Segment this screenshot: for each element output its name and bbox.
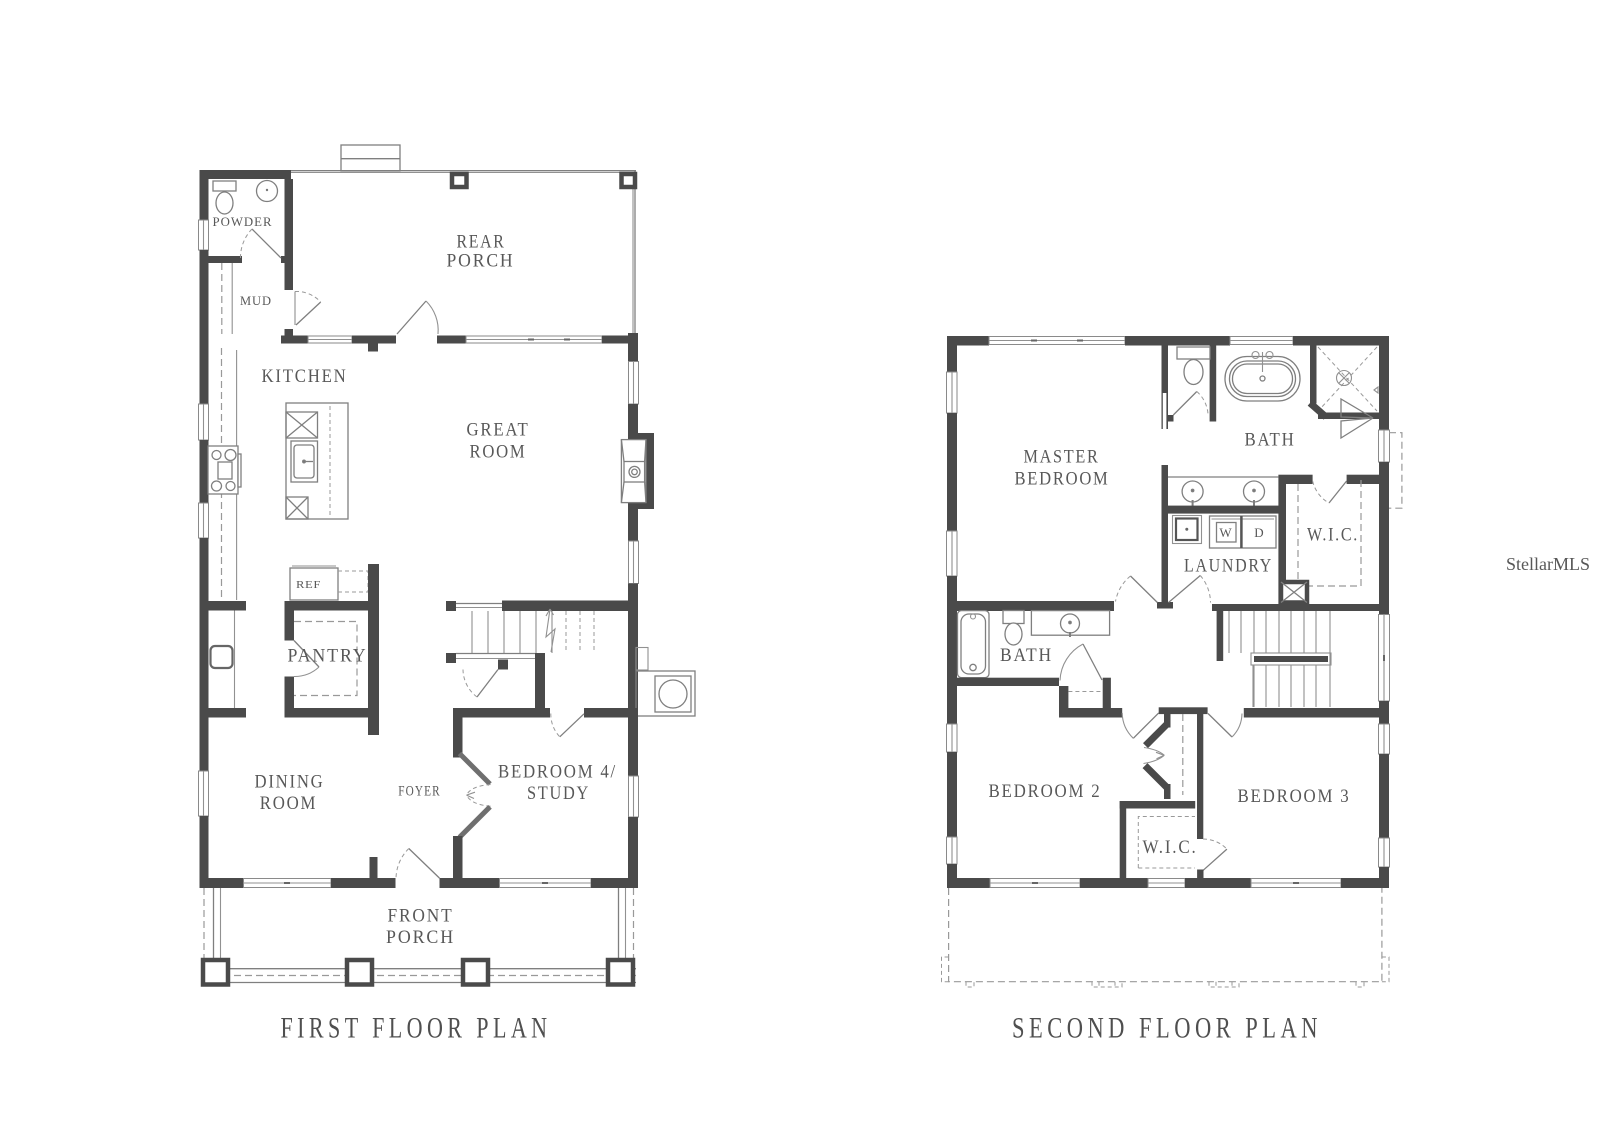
svg-text:MASTER: MASTER <box>1024 447 1100 468</box>
svg-text:FOYER: FOYER <box>398 784 441 800</box>
svg-text:POWDER: POWDER <box>213 214 273 229</box>
svg-text:BATH: BATH <box>1245 430 1296 451</box>
svg-text:STUDY: STUDY <box>527 783 590 804</box>
svg-text:BATH: BATH <box>1000 645 1053 666</box>
svg-text:GREAT: GREAT <box>467 420 530 441</box>
svg-text:W.I.C.: W.I.C. <box>1307 525 1359 546</box>
svg-text:DINING: DINING <box>255 772 325 793</box>
svg-text:D: D <box>1254 525 1264 540</box>
svg-text:W: W <box>1219 525 1232 540</box>
svg-text:REF: REF <box>296 579 321 591</box>
svg-text:BEDROOM 3: BEDROOM 3 <box>1238 786 1351 807</box>
svg-text:W.I.C.: W.I.C. <box>1143 837 1198 858</box>
svg-text:BEDROOM 4/: BEDROOM 4/ <box>498 762 617 783</box>
svg-text:ROOM: ROOM <box>260 793 318 814</box>
svg-text:BEDROOM: BEDROOM <box>1015 469 1110 490</box>
svg-text:PANTRY: PANTRY <box>288 646 368 667</box>
svg-text:PORCH: PORCH <box>386 927 455 948</box>
svg-text:FIRST FLOOR PLAN: FIRST FLOOR PLAN <box>281 1012 552 1045</box>
svg-text:REAR: REAR <box>457 232 506 253</box>
svg-text:LAUNDRY: LAUNDRY <box>1184 556 1273 577</box>
svg-text:StellarMLS: StellarMLS <box>1506 554 1590 574</box>
svg-text:MUD: MUD <box>240 293 272 308</box>
svg-text:PORCH: PORCH <box>447 251 515 272</box>
svg-text:KITCHEN: KITCHEN <box>262 366 348 387</box>
svg-text:FRONT: FRONT <box>388 906 454 927</box>
svg-text:BEDROOM 2: BEDROOM 2 <box>989 781 1102 802</box>
svg-text:ROOM: ROOM <box>470 442 527 463</box>
svg-text:SECOND FLOOR PLAN: SECOND FLOOR PLAN <box>1012 1012 1322 1045</box>
